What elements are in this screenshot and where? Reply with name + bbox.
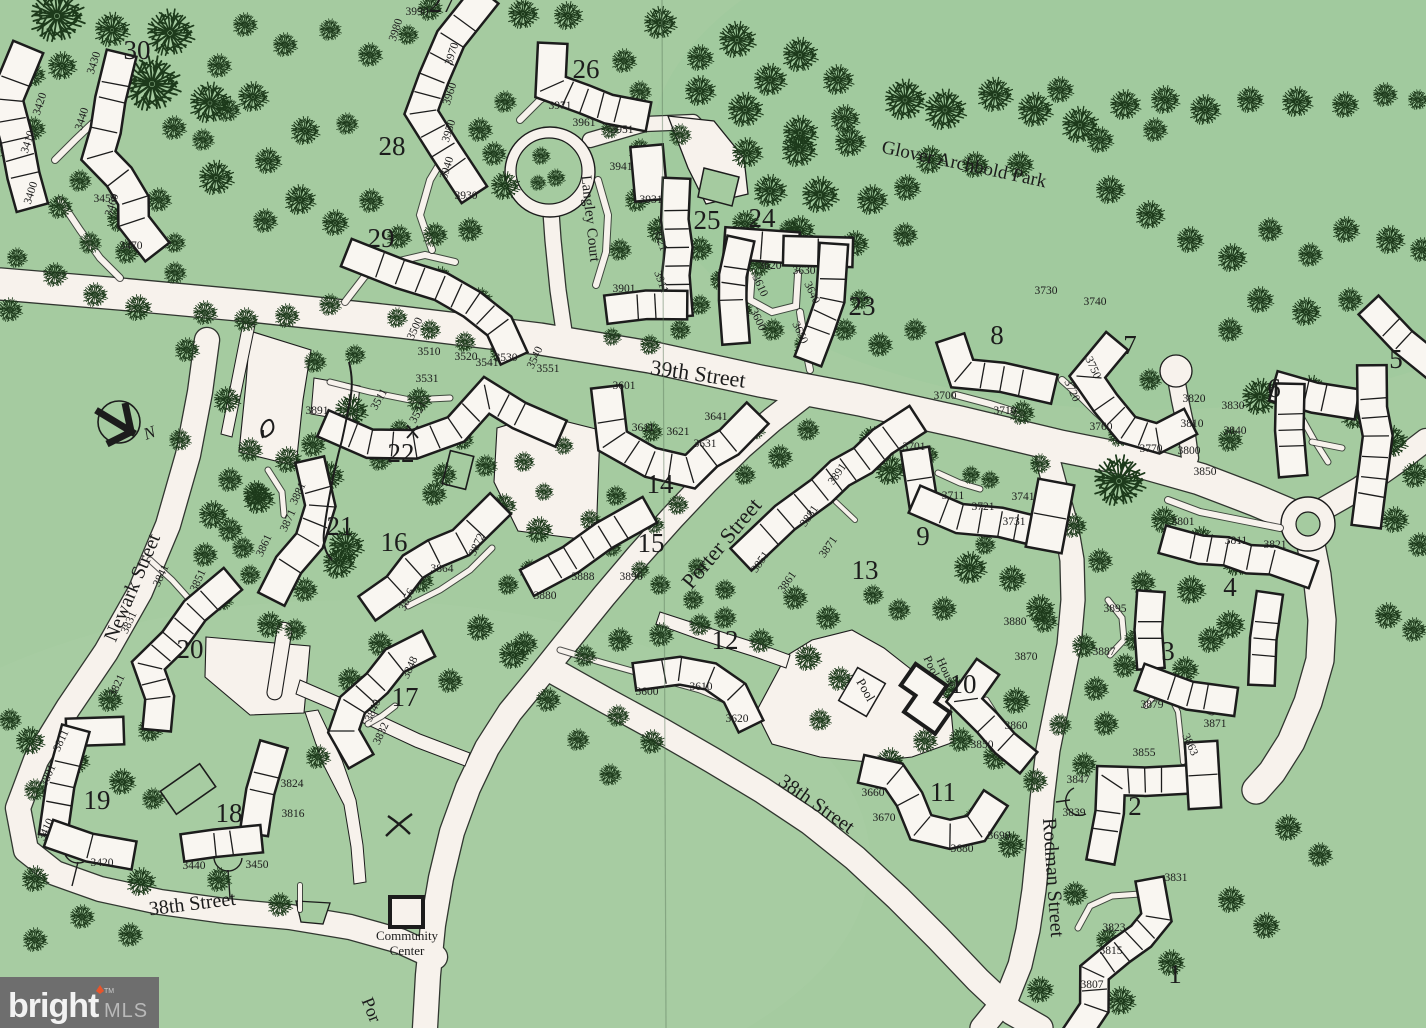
svg-text:3891: 3891 — [306, 405, 329, 417]
svg-text:3839: 3839 — [1063, 807, 1086, 819]
svg-text:3551: 3551 — [537, 363, 560, 375]
svg-text:18: 18 — [216, 798, 243, 828]
svg-text:3601: 3601 — [613, 380, 636, 392]
svg-text:3631: 3631 — [694, 438, 717, 450]
svg-text:3760: 3760 — [1090, 421, 1113, 433]
svg-text:17: 17 — [392, 682, 419, 712]
svg-text:26: 26 — [573, 54, 600, 84]
svg-text:6: 6 — [1267, 373, 1281, 403]
svg-text:3541: 3541 — [476, 357, 499, 369]
svg-text:11: 11 — [930, 777, 956, 807]
svg-text:3470: 3470 — [120, 240, 143, 252]
svg-text:19: 19 — [84, 785, 111, 815]
svg-text:3840: 3840 — [1224, 425, 1247, 437]
svg-text:1: 1 — [1168, 959, 1182, 989]
svg-text:3690: 3690 — [988, 830, 1011, 842]
svg-text:7: 7 — [1123, 330, 1137, 360]
svg-text:3847: 3847 — [1067, 774, 1090, 786]
svg-text:28: 28 — [379, 131, 406, 161]
svg-text:3621: 3621 — [667, 426, 690, 438]
svg-text:14: 14 — [647, 469, 675, 499]
svg-text:10: 10 — [950, 669, 977, 699]
svg-text:27: 27 — [429, 0, 456, 18]
svg-text:3930: 3930 — [455, 190, 478, 202]
svg-text:3820: 3820 — [1183, 393, 1206, 405]
svg-text:22: 22 — [388, 438, 415, 468]
svg-text:3660: 3660 — [862, 787, 885, 799]
svg-text:3824: 3824 — [281, 778, 304, 790]
svg-text:3901: 3901 — [613, 283, 636, 295]
svg-text:3600: 3600 — [636, 686, 659, 698]
svg-text:3620: 3620 — [759, 260, 782, 272]
svg-text:8: 8 — [990, 320, 1004, 350]
svg-text:3510: 3510 — [418, 346, 441, 358]
svg-text:3871: 3871 — [1204, 718, 1227, 730]
svg-text:3: 3 — [1161, 636, 1175, 666]
svg-text:16: 16 — [381, 527, 408, 557]
svg-text:3850: 3850 — [971, 739, 994, 751]
svg-text:3870: 3870 — [1015, 651, 1038, 663]
svg-text:3710: 3710 — [994, 405, 1017, 417]
svg-text:5: 5 — [1389, 344, 1403, 374]
svg-text:3831: 3831 — [1165, 872, 1188, 884]
svg-text:3610: 3610 — [690, 681, 713, 693]
svg-text:3887: 3887 — [1093, 646, 1116, 658]
svg-text:3450: 3450 — [246, 859, 269, 871]
svg-text:3855: 3855 — [1133, 747, 1156, 759]
svg-text:3879: 3879 — [1141, 699, 1164, 711]
svg-text:3730: 3730 — [1035, 285, 1058, 297]
svg-text:3680: 3680 — [951, 843, 974, 855]
svg-text:3520: 3520 — [455, 351, 478, 363]
svg-text:3860: 3860 — [1005, 720, 1028, 732]
svg-text:29: 29 — [368, 223, 395, 253]
svg-text:3880: 3880 — [1004, 616, 1027, 628]
svg-text:3721: 3721 — [972, 501, 995, 513]
svg-text:3951: 3951 — [611, 124, 634, 136]
svg-text:20: 20 — [177, 634, 204, 664]
svg-text:21: 21 — [327, 511, 354, 541]
svg-text:3807: 3807 — [1081, 979, 1104, 991]
svg-text:2: 2 — [1128, 791, 1142, 821]
svg-text:24: 24 — [749, 203, 777, 233]
svg-text:Center: Center — [390, 943, 425, 958]
svg-text:3864: 3864 — [431, 563, 454, 575]
svg-text:3895: 3895 — [1104, 603, 1127, 615]
svg-text:bright: bright — [8, 987, 99, 1025]
svg-text:3800: 3800 — [1178, 445, 1201, 457]
svg-text:3990: 3990 — [406, 6, 429, 18]
svg-text:3740: 3740 — [1084, 296, 1107, 308]
svg-text:3611: 3611 — [632, 422, 655, 434]
svg-text:3630: 3630 — [793, 265, 816, 277]
svg-text:3801: 3801 — [1172, 516, 1195, 528]
svg-text:3531: 3531 — [416, 373, 439, 385]
svg-text:3420: 3420 — [91, 857, 114, 869]
svg-text:3670: 3670 — [873, 812, 896, 824]
svg-text:3620: 3620 — [726, 713, 749, 725]
svg-text:4: 4 — [1223, 572, 1237, 602]
svg-text:3823: 3823 — [1103, 922, 1126, 934]
svg-text:15: 15 — [638, 528, 665, 558]
svg-text:3701: 3701 — [903, 441, 926, 453]
svg-text:13: 13 — [852, 555, 879, 585]
svg-text:23: 23 — [849, 291, 876, 321]
svg-text:3815: 3815 — [1100, 945, 1123, 957]
svg-text:3770: 3770 — [1140, 443, 1163, 455]
svg-text:MLS: MLS — [104, 1000, 148, 1022]
svg-text:12: 12 — [712, 625, 739, 655]
svg-text:30: 30 — [124, 35, 151, 65]
svg-text:3700: 3700 — [934, 390, 957, 402]
svg-text:3961: 3961 — [573, 117, 596, 129]
svg-text:3641: 3641 — [705, 411, 728, 423]
svg-text:3821: 3821 — [1264, 539, 1287, 551]
svg-text:3711: 3711 — [942, 490, 965, 502]
svg-text:3811: 3811 — [1225, 535, 1248, 547]
svg-text:3741: 3741 — [1012, 491, 1035, 503]
svg-text:3810: 3810 — [1181, 418, 1204, 430]
svg-text:9: 9 — [916, 521, 930, 551]
svg-text:3816: 3816 — [282, 808, 305, 820]
svg-text:TM: TM — [104, 988, 114, 995]
svg-text:3971: 3971 — [549, 100, 572, 112]
svg-text:25: 25 — [694, 205, 721, 235]
svg-text:3731: 3731 — [1003, 516, 1026, 528]
svg-text:3888: 3888 — [572, 571, 595, 583]
svg-text:3896: 3896 — [620, 571, 643, 583]
svg-text:3880: 3880 — [534, 590, 557, 602]
svg-text:Community: Community — [376, 928, 439, 943]
svg-text:3440: 3440 — [183, 860, 206, 872]
svg-text:3850: 3850 — [1194, 466, 1217, 478]
svg-text:3941: 3941 — [610, 161, 633, 173]
svg-text:3830: 3830 — [1222, 400, 1245, 412]
svg-text:3931: 3931 — [640, 194, 663, 206]
